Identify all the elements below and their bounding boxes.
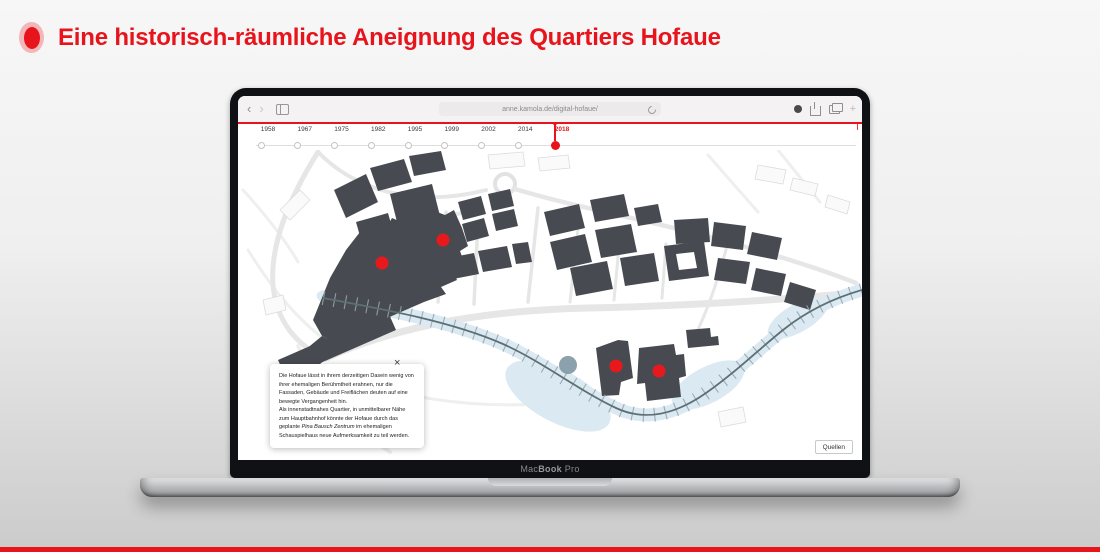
macbook-base-notch [488, 478, 612, 486]
macbook-mockup: ‹ › anne.kamola.de/digital-hofaue/ + [140, 88, 960, 500]
poi-marker[interactable] [376, 257, 389, 270]
timeline-year-dot[interactable] [441, 142, 448, 149]
bottom-accent-bar [0, 547, 1100, 552]
timeline-year-label: 1975 [329, 126, 355, 133]
browser-toolbar: ‹ › anne.kamola.de/digital-hofaue/ + [238, 96, 862, 122]
brand-dot-icon [19, 22, 44, 53]
poi-marker[interactable] [610, 360, 623, 373]
url-text: anne.kamola.de/digital-hofaue/ [502, 106, 598, 113]
timeline-year-label: 1967 [292, 126, 318, 133]
timeline-year-dot[interactable] [478, 142, 485, 149]
timeline-year-dot[interactable] [258, 142, 265, 149]
poi-marker[interactable] [437, 234, 450, 247]
timeline-axis-line [238, 122, 862, 124]
timeline-year-dot[interactable] [515, 142, 522, 149]
timeline-year-label: 1999 [439, 126, 465, 133]
address-bar[interactable]: anne.kamola.de/digital-hofaue/ [439, 102, 661, 116]
info-popup: Die Hofaue lässt in ihrem derzeitigen Da… [270, 364, 424, 448]
timeline-year-label: 2018 [549, 126, 575, 133]
station-marker[interactable] [559, 356, 577, 374]
toolbar-right: + [794, 96, 856, 122]
macbook-base [140, 478, 960, 497]
brand-dot-inner [24, 27, 40, 49]
timeline-year-label: 2014 [512, 126, 538, 133]
timeline-year-label: 1995 [402, 126, 428, 133]
timeline-year-label: 1982 [365, 126, 391, 133]
sidebar-icon[interactable] [276, 104, 289, 115]
macbook-bezel: ‹ › anne.kamola.de/digital-hofaue/ + [230, 88, 870, 478]
page-header: Eine historisch-räumliche Aneignung des … [19, 22, 721, 53]
popup-italic-term: Pina Bausch Zentrum [302, 424, 355, 430]
macbook-label: MacBook Pro [230, 464, 870, 474]
sources-button[interactable]: Quellen [815, 440, 853, 454]
timeline-year-dot[interactable] [405, 142, 412, 149]
page-title: Eine historisch-räumliche Aneignung des … [58, 24, 721, 52]
stage: Eine historisch-räumliche Aneignung des … [0, 0, 1100, 552]
extension-icon[interactable] [794, 105, 802, 113]
timeline-year-dot[interactable] [294, 142, 301, 149]
refresh-icon[interactable] [646, 104, 657, 115]
share-icon[interactable] [810, 106, 821, 116]
browser-window: ‹ › anne.kamola.de/digital-hofaue/ + [238, 96, 862, 460]
popup-paragraph-1: Die Hofaue lässt in ihrem derzeitigen Da… [279, 372, 415, 406]
timeline-year-dot[interactable] [551, 141, 560, 150]
back-button[interactable]: ‹ [243, 96, 255, 122]
poi-marker[interactable] [653, 365, 666, 378]
timeline-year-dot[interactable] [331, 142, 338, 149]
forward-button[interactable]: › [255, 96, 267, 122]
timeline-year-label: 2002 [476, 126, 502, 133]
timeline-year-label: 1958 [255, 126, 281, 133]
new-tab-icon[interactable]: + [850, 103, 856, 115]
close-icon[interactable]: × [394, 358, 400, 369]
tabs-icon[interactable] [829, 105, 840, 114]
timeline-year-dot[interactable] [368, 142, 375, 149]
timeline-axis-end-tick [857, 123, 859, 130]
popup-paragraph-2: Als innenstadtnahes Quartier, in unmitte… [279, 406, 415, 440]
